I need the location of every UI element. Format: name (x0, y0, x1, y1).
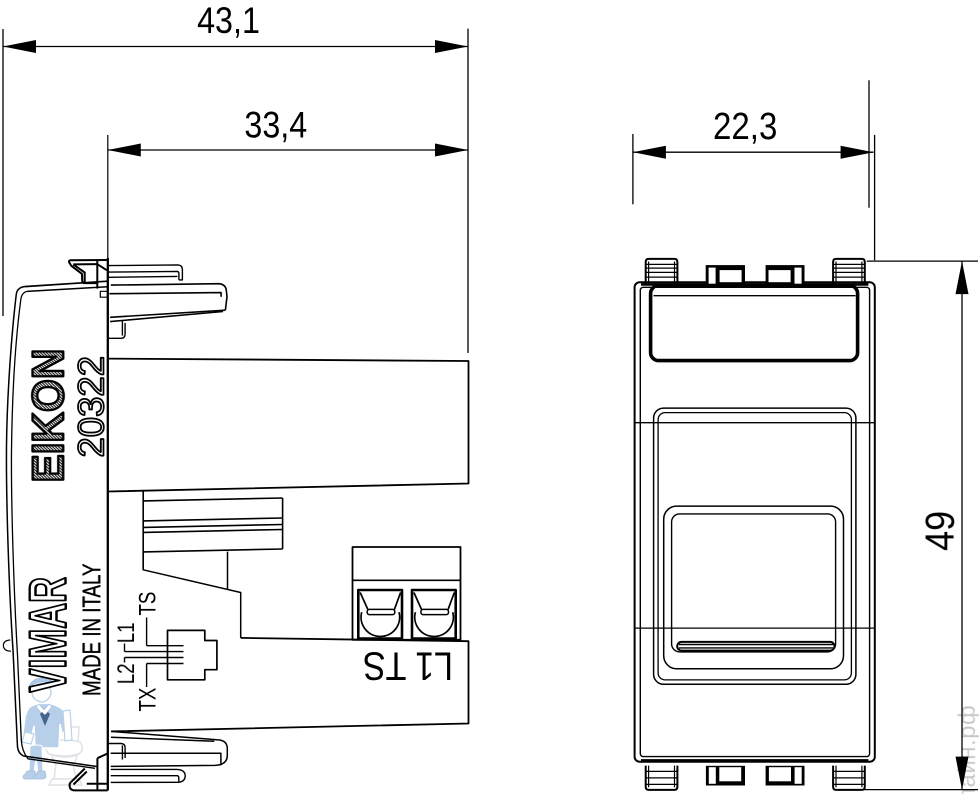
svg-text:L1 TS: L1 TS (363, 644, 453, 689)
svg-text:L2: L2 (113, 663, 140, 684)
svg-text:L1: L1 (113, 622, 140, 643)
svg-text:VIMAR: VIMAR (20, 577, 77, 693)
svg-text:49: 49 (918, 511, 964, 551)
svg-text:20322: 20322 (71, 356, 112, 458)
svg-text:EIKON: EIKON (24, 349, 73, 483)
svg-text:22,3: 22,3 (713, 105, 777, 148)
svg-text:43,1: 43,1 (197, 0, 260, 42)
svg-text:TX: TX (134, 688, 161, 712)
svg-text:33,4: 33,4 (244, 104, 307, 146)
svg-text:лайн.рф: лайн.рф (954, 705, 979, 794)
svg-text:TS: TS (134, 592, 161, 616)
svg-text:MADE IN ITALY: MADE IN ITALY (78, 563, 106, 696)
